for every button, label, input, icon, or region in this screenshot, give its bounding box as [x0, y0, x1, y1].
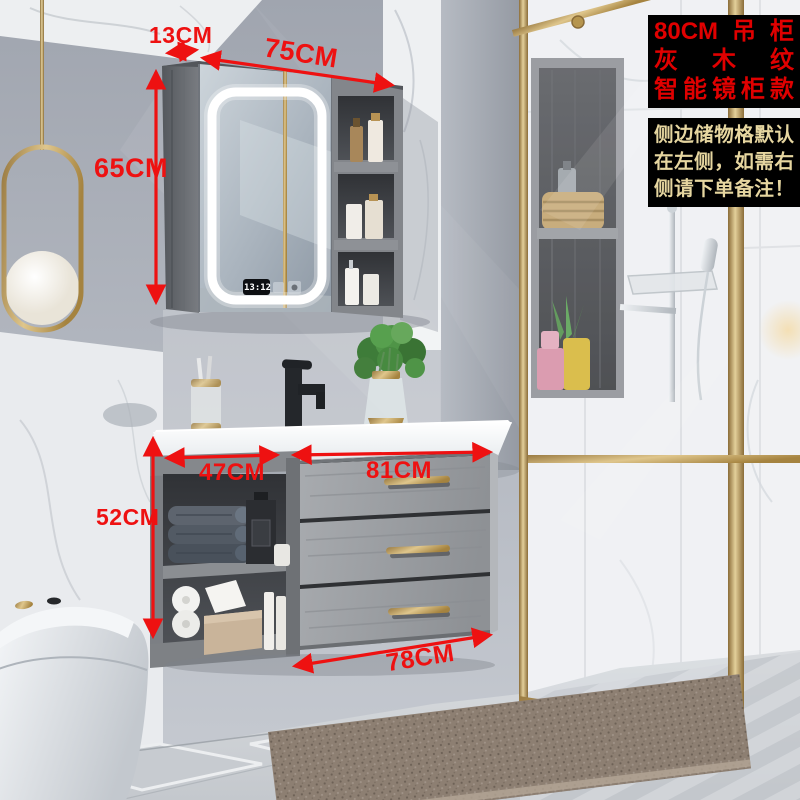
rolled-towels	[168, 506, 252, 563]
mirror-clock-panel	[243, 279, 270, 295]
slim-bottle	[276, 596, 286, 650]
cosmetic-bottle	[363, 274, 379, 305]
cologne-bottle	[246, 492, 276, 564]
mirror-door-gap-trim	[283, 70, 287, 308]
open-shelf-section	[150, 451, 300, 668]
toilet-sensor	[47, 598, 61, 605]
lamp-stem	[40, 0, 44, 150]
cabinet-wall-shadow	[400, 96, 438, 332]
lamp-globe	[5, 251, 79, 325]
cosmetic-bottle	[368, 120, 383, 162]
scene-illustration	[0, 0, 800, 800]
glass-vase	[364, 378, 408, 424]
cosmetic-bottle	[365, 200, 383, 239]
cabinet-side-panel	[162, 62, 199, 313]
gold-frame-right	[728, 0, 744, 740]
product-photo-bathroom-vanity: 13CM 75CM 65CM 47CM 81CM 52CM 78CM 13:12…	[0, 0, 800, 800]
white-jar	[274, 544, 290, 566]
gold-frame-left	[519, 0, 528, 702]
gold-frame-horizontal	[528, 455, 800, 463]
drawer-side-panel	[490, 451, 498, 634]
stabilizer-knob	[572, 16, 584, 28]
slim-bottle	[264, 592, 274, 650]
towel-hook-shadow	[103, 403, 157, 427]
toilet	[0, 598, 148, 800]
cosmetic-bottle	[350, 126, 363, 162]
pump-bottle	[345, 268, 359, 305]
cosmetic-bottle	[346, 204, 362, 239]
mirror-cabinet	[150, 61, 438, 334]
cabinet-shelf	[334, 240, 398, 250]
mirror-touch-button	[273, 282, 284, 293]
cabinet-shelf	[334, 162, 398, 172]
drawer-section	[300, 451, 498, 650]
